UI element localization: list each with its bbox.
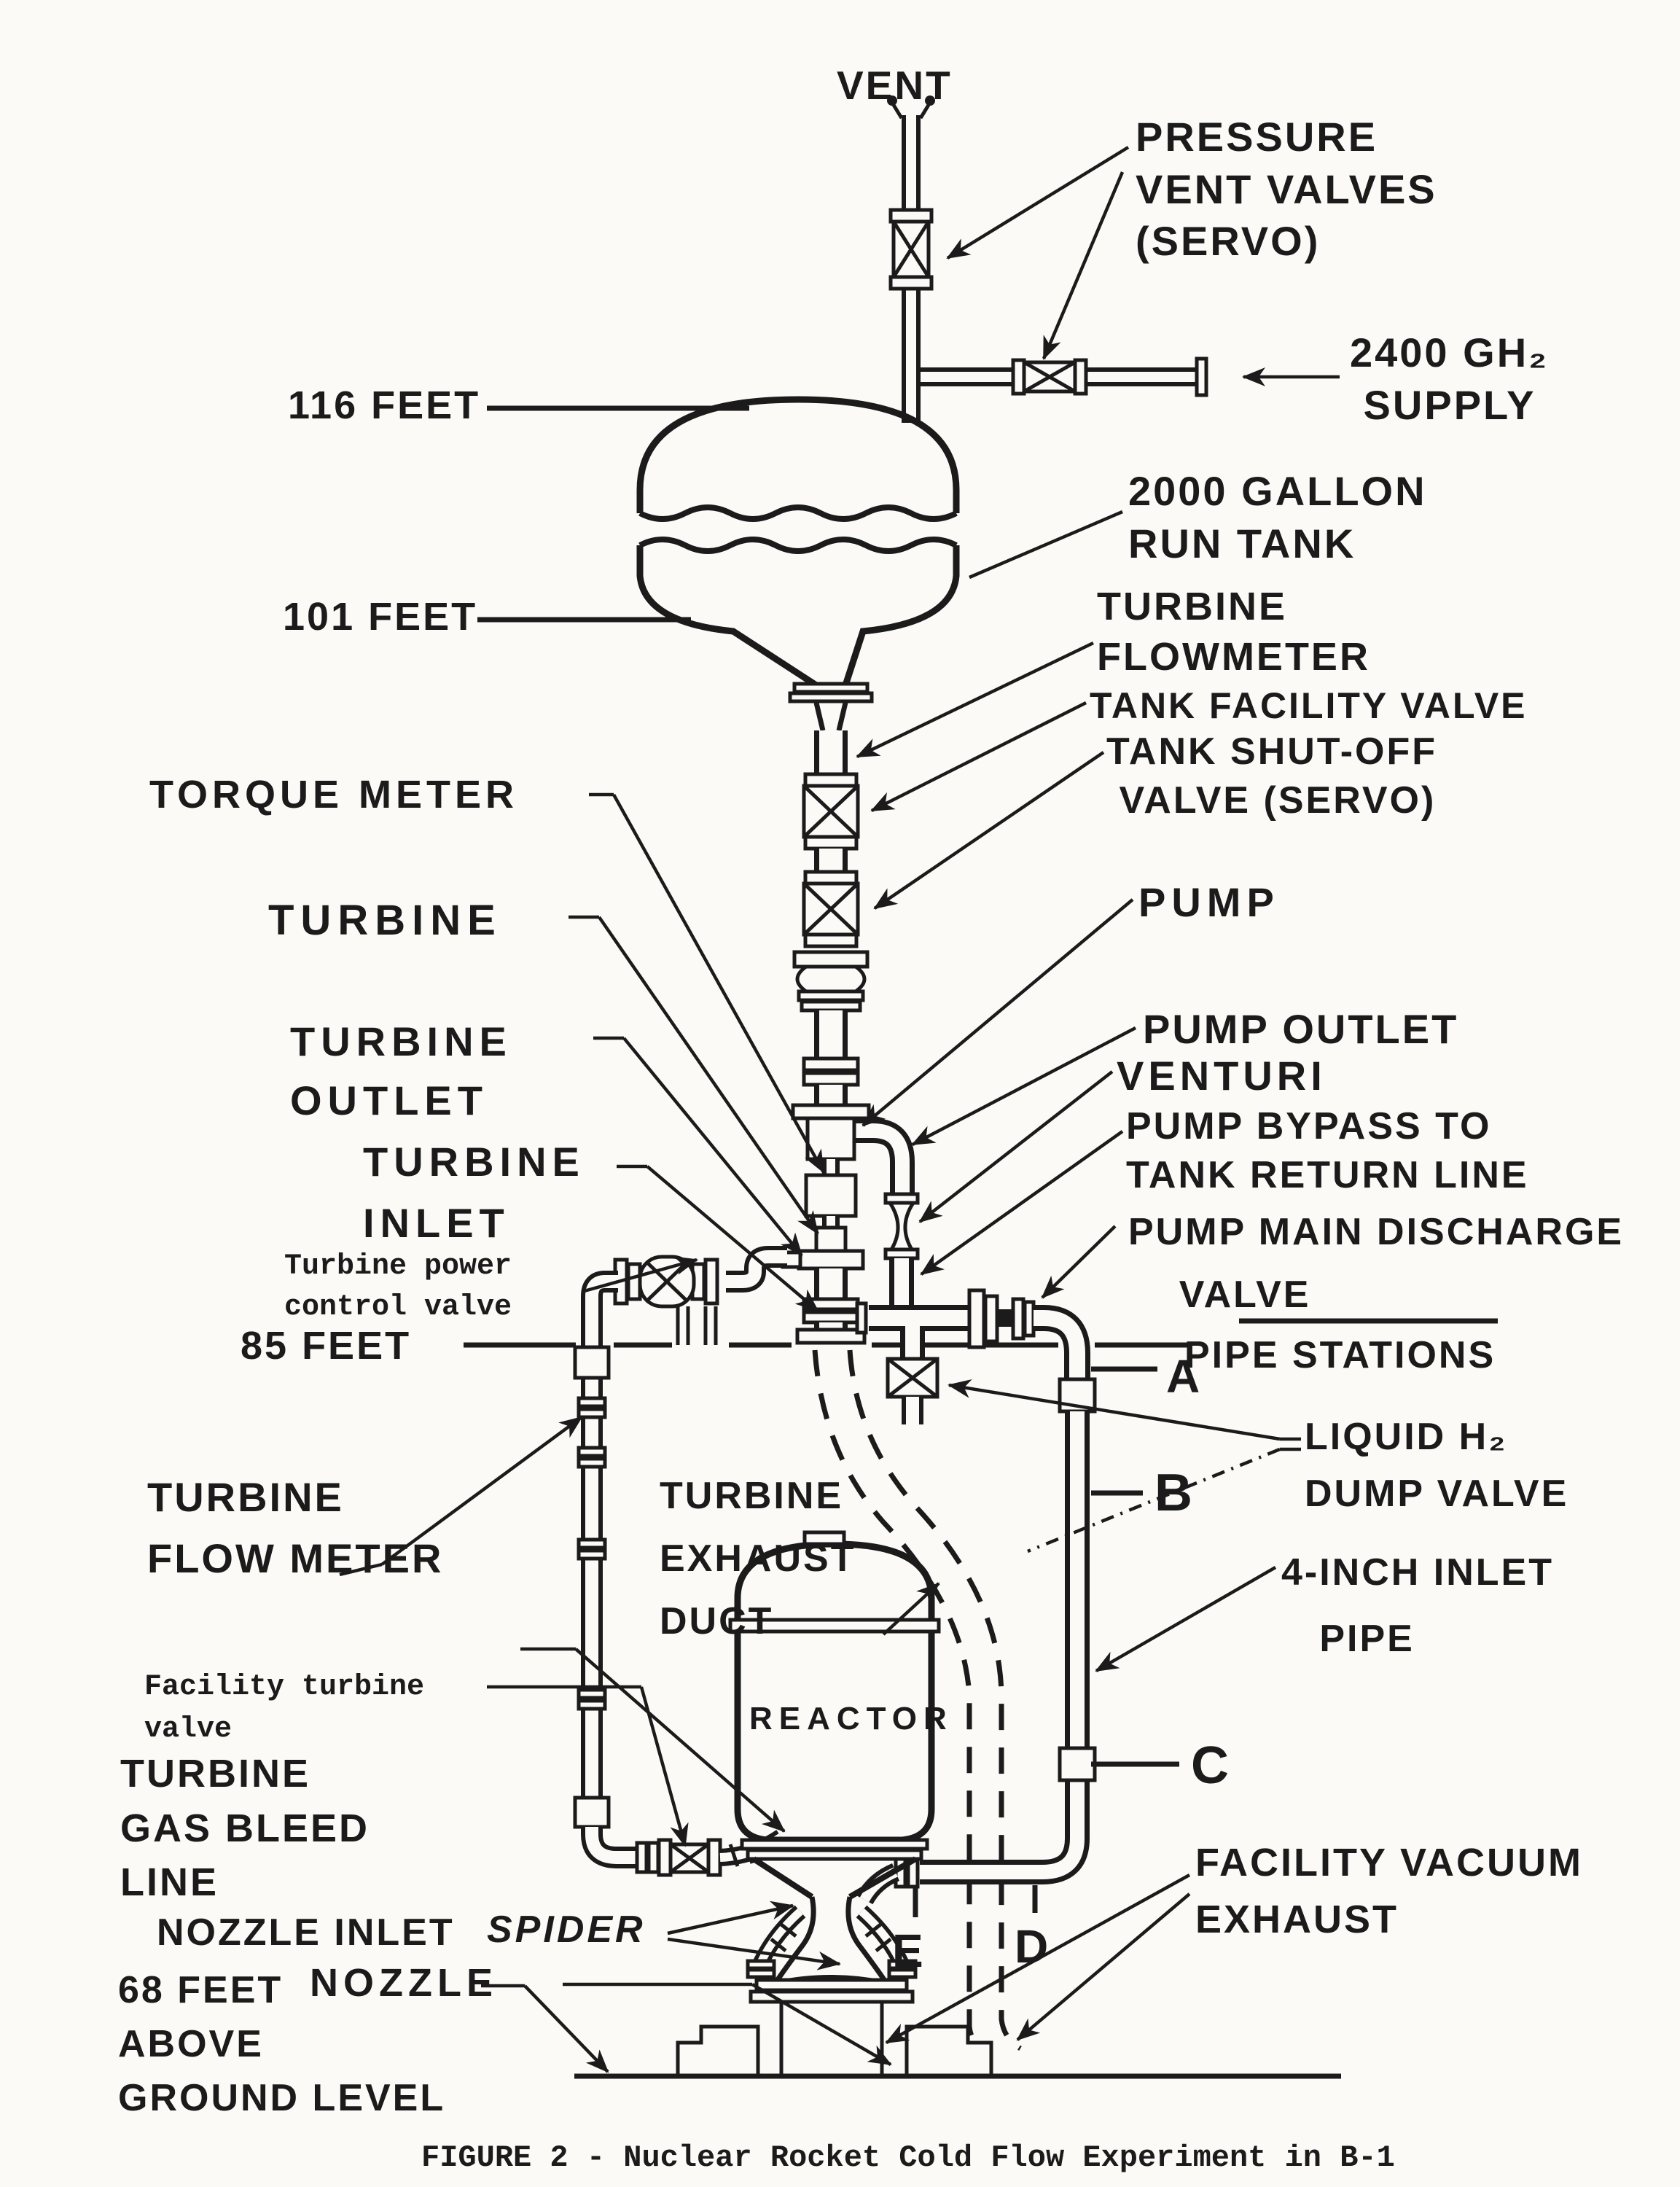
test-stand-base — [574, 1980, 1341, 2076]
valve-disc — [708, 1840, 720, 1875]
facility-turbine-valve-leader — [641, 1687, 685, 1846]
label-pump-bypass: PUMP BYPASS TO TANK RETURN LINE — [1126, 1102, 1529, 1199]
label-station-d: D — [1015, 1917, 1048, 1977]
flange — [748, 1970, 774, 1977]
label-gh2-supply: 2400 GH₂ SUPPLY — [1350, 327, 1549, 431]
label-85-feet: 85 FEET — [241, 1321, 411, 1371]
label-pump-outlet: PUMP OUTLET — [1143, 1003, 1458, 1056]
right-step-block — [907, 2027, 991, 2076]
label-facility-turbine-valve: Facility turbine valve — [144, 1666, 424, 1751]
label-turbine-inlet: TURBINE INLET — [363, 1131, 585, 1254]
label-four-inch-inlet-pipe: 4-INCH INLET PIPE — [1281, 1540, 1554, 1672]
label-facility-vacuum-exhaust: FACILITY VACUUM EXHAUST — [1195, 1834, 1583, 1949]
flange — [804, 1073, 858, 1085]
flange — [579, 1540, 605, 1548]
discharge-valve-flange — [985, 1296, 997, 1341]
label-nozzle-inlet: NOZZLE INLET — [157, 1909, 455, 1957]
label-turbine-power-control-valve: Turbine power control valve — [284, 1247, 512, 1328]
label-turbine: TURBINE — [268, 894, 502, 948]
turbine-flowmeter-right-leader — [857, 643, 1093, 757]
flange — [579, 1448, 605, 1456]
pump-top-flange — [793, 1105, 869, 1118]
base-plate — [757, 1980, 907, 1990]
flange — [804, 1312, 858, 1322]
ring — [799, 991, 863, 1000]
tank-facility-valve-leader — [872, 703, 1086, 811]
flange — [579, 1398, 605, 1406]
four-inch-pipe-leader — [1096, 1567, 1275, 1671]
flange — [649, 1843, 658, 1872]
wide-flange — [794, 952, 867, 967]
venturi-bypass-line — [886, 1194, 918, 1318]
label-run-tank: 2000 GALLON RUN TANK — [1128, 465, 1427, 569]
valve-disc — [706, 1260, 717, 1303]
pump-bypass-leader — [921, 1131, 1122, 1274]
label-turbine-gas-bleed-line: TURBINE GAS BLEED LINE — [120, 1747, 370, 1910]
label-torque-meter: TORQUE METER — [149, 770, 518, 820]
discharge-valve-leader — [1042, 1226, 1115, 1298]
flange — [579, 1459, 605, 1467]
label-turbine-exhaust-duct: TURBINE EXHAUST DUCT — [660, 1465, 856, 1653]
label-tank-facility-valve: TANK FACILITY VALVE — [1090, 682, 1528, 729]
label-liquid-h2-dump-valve: LIQUID H₂ DUMP VALVE — [1305, 1408, 1568, 1522]
label-turbine-flowmeter-right: TURBINE FLOWMETER — [1097, 582, 1370, 682]
ring — [802, 1002, 860, 1010]
run-tank-leader — [969, 512, 1122, 577]
pump-outlet-leader — [913, 1028, 1136, 1145]
pipe-coupling — [575, 1798, 609, 1827]
label-pressure-vent-valves: PRESSURE VENT VALVES (SERVO) — [1136, 111, 1437, 268]
run-tank — [640, 399, 956, 730]
label-pump-main-discharge: PUMP MAIN DISCHARGE VALVE — [1128, 1201, 1624, 1327]
label-pump: PUMP — [1138, 876, 1280, 929]
label-turbine-flow-meter-left: TURBINE FLOW METER — [147, 1467, 443, 1589]
pump-inlet-bulge — [797, 967, 864, 991]
label-station-a: A — [1166, 1347, 1200, 1407]
label-station-b: B — [1154, 1459, 1192, 1527]
valve-disc — [628, 1264, 640, 1299]
label-venturi: VENTURI — [1117, 1050, 1327, 1102]
tank-outlet-flange — [790, 693, 872, 701]
left-step-block — [678, 2027, 758, 2076]
tank-outlet-flange — [794, 684, 867, 692]
venturi-leader — [920, 1072, 1112, 1222]
coupling — [816, 1228, 845, 1251]
label-vent: VENT — [837, 60, 953, 111]
label-turbine-outlet: TURBINE OUTLET — [290, 1012, 512, 1130]
flange — [805, 837, 856, 849]
gh2-supply-branch — [917, 359, 1206, 395]
flange — [579, 1551, 605, 1559]
turbine-bottom-flange — [797, 1330, 864, 1343]
discharge-valve-flange — [969, 1290, 984, 1347]
flange — [579, 1690, 605, 1698]
venturi — [890, 1203, 913, 1250]
figure-page: VENT PRESSURE VENT VALVES (SERVO) 2400 G… — [0, 0, 1680, 2187]
label-spider: SPIDER — [487, 1906, 646, 1954]
figure-caption: FIGURE 2 - Nuclear Rocket Cold Flow Expe… — [421, 2139, 1395, 2178]
68-feet-leader — [525, 1986, 608, 2072]
flange — [804, 1059, 858, 1070]
pump-leader — [863, 900, 1133, 1126]
flange — [637, 1843, 646, 1872]
flange — [886, 1250, 918, 1258]
label-reactor: REACTOR — [749, 1699, 920, 1739]
discharge-valve-disc — [1013, 1299, 1023, 1338]
turbine-power-control-valve-assembly — [592, 1257, 787, 1345]
label-station-c: C — [1191, 1732, 1229, 1799]
liquid-h2-leader — [949, 1385, 1280, 1439]
reactor-bottom-ring — [748, 1850, 921, 1859]
label-tank-shutoff-valve: TANK SHUT-OFF VALVE (SERVO) — [1106, 728, 1437, 824]
discharge-valve-disc — [1025, 1302, 1034, 1336]
tank-shutoff-leader — [875, 752, 1103, 908]
label-101-feet: 101 FEET — [283, 592, 477, 642]
main-feed-column — [793, 730, 869, 1118]
flange — [579, 1409, 605, 1417]
flange — [805, 935, 856, 946]
pipe-coupling — [575, 1347, 609, 1378]
label-116-feet: 116 FEET — [288, 381, 480, 431]
label-pipe-stations: PIPE STATIONS — [1184, 1331, 1496, 1380]
turbine-top-flange — [799, 1251, 863, 1268]
label-station-e: E — [892, 1922, 923, 1981]
pressure-vent-valve-vertical — [891, 210, 931, 289]
tee-end-flange — [857, 1303, 866, 1333]
flange — [579, 1701, 605, 1709]
pipe-coupling — [1060, 1748, 1095, 1780]
flange — [748, 1961, 774, 1968]
pedestal-block — [781, 2002, 882, 2076]
label-68-feet: 68 FEET ABOVE GROUND LEVEL — [118, 1964, 445, 2125]
reactor-bottom-ring — [742, 1840, 927, 1849]
pipe-station-ticks — [915, 1369, 1179, 1917]
torque-meter — [806, 1175, 856, 1216]
